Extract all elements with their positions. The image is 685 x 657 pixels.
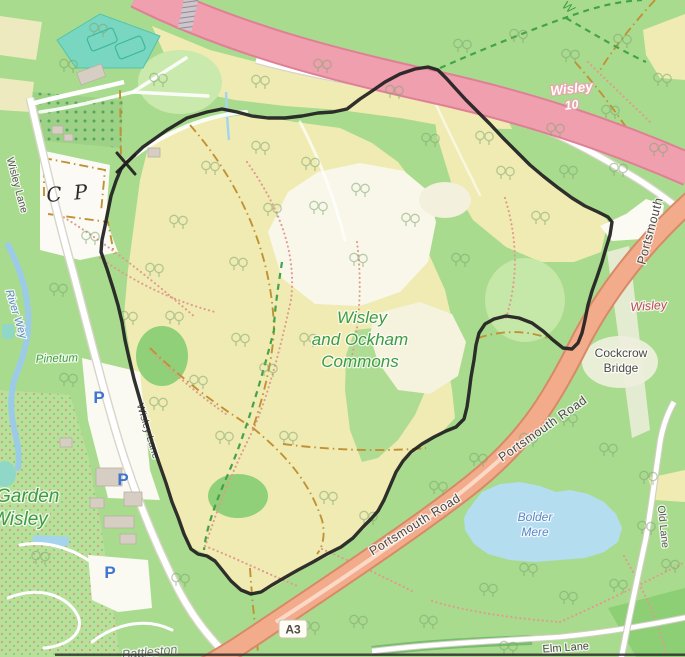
- handwritten-cp-label: C P: [45, 179, 91, 207]
- parking-icon-1: P: [93, 388, 104, 407]
- parking-icon-3: P: [104, 563, 115, 582]
- wisley-village-label: Wisley: [630, 298, 668, 315]
- motorway-junction-number: 10: [564, 97, 580, 113]
- pinetum-label: Pinetum: [36, 352, 79, 365]
- garden-label-line1: Garden: [0, 486, 59, 507]
- commons-label-line1: Wisley: [337, 308, 388, 327]
- commons-label-line2: and Ockham: [312, 330, 408, 349]
- scan-edge-line: [55, 654, 685, 656]
- a3-road-badge: A3: [279, 620, 307, 638]
- commons-label-line3: Commons: [321, 352, 399, 371]
- a3-badge-text: A3: [285, 623, 301, 637]
- cockcrow-bridge-line1: Cockcrow: [595, 346, 648, 360]
- map-canvas: Wisley and Ockham Commons Wisley 10 Port…: [0, 0, 685, 657]
- parking-icon-2: P: [117, 470, 128, 489]
- cockcrow-bridge-line2: Bridge: [604, 361, 639, 375]
- bolder-mere-line2: Mere: [521, 525, 549, 539]
- bolder-mere-line1: Bolder: [518, 510, 554, 524]
- garden-label-line2: Wisley: [0, 509, 49, 530]
